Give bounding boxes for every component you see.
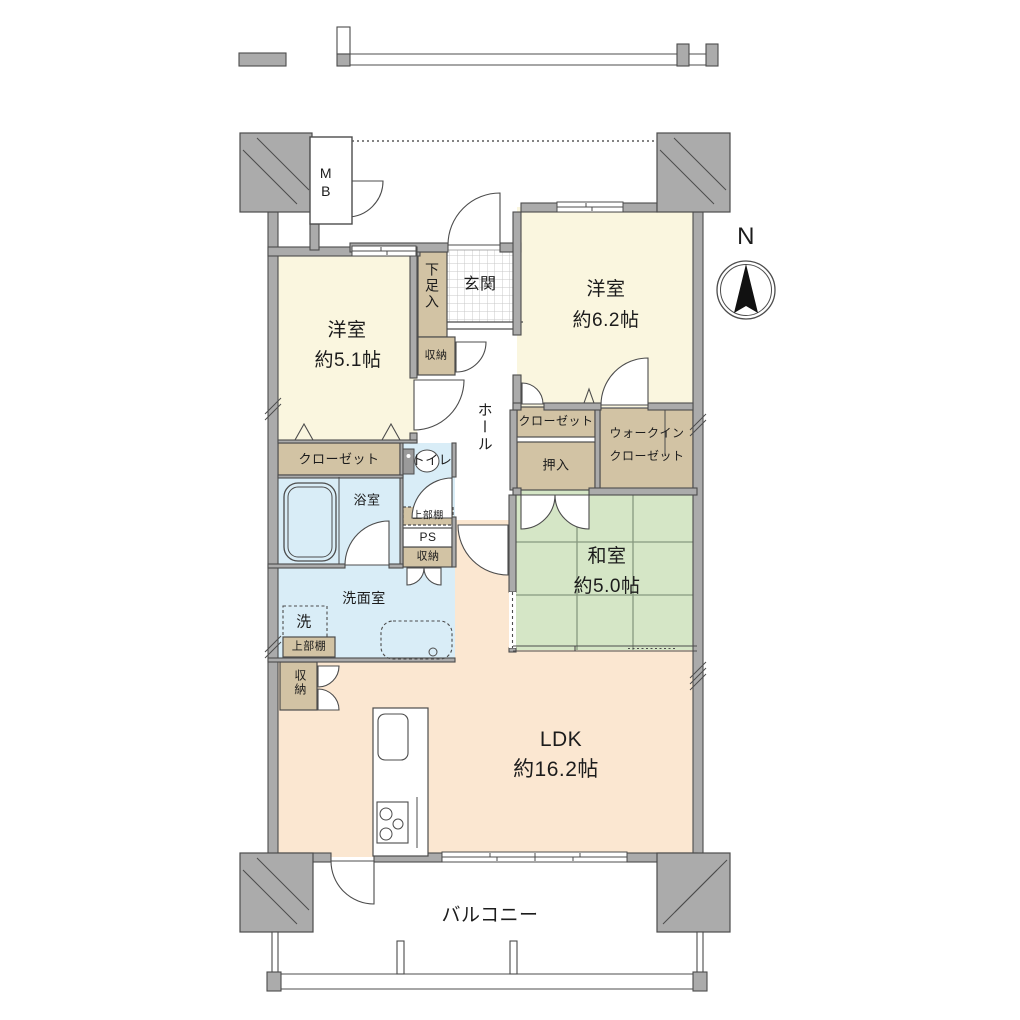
ldk-size: 約16.2帖: [513, 758, 599, 782]
meter-box-label-b: B: [321, 183, 331, 199]
mid-storage-label: 収納: [417, 551, 440, 564]
japanese-room-name: 和室: [587, 546, 626, 568]
bedroom1-size: 約5.1帖: [315, 350, 382, 372]
toilet-label: トイレ: [412, 454, 453, 469]
closet2-label: クローゼット: [518, 415, 593, 429]
hall-storage-label: 収納: [425, 350, 448, 363]
balcony-railing: [267, 932, 707, 991]
upper-shelf-toilet-label: 上部棚: [412, 510, 444, 522]
compass: [717, 261, 775, 319]
floorplan-page: 洋室 約5.1帖 洋室 約6.2帖 和室 約5.0帖 LDK 約16.2帖 バル…: [0, 0, 1020, 1020]
hall-label: ホール: [475, 402, 492, 453]
shoe-cabinet-label: 下足入: [424, 262, 440, 310]
wic-label-line2: クローゼット: [609, 450, 684, 464]
upper-shelf-wash-label: 上部棚: [292, 641, 327, 654]
closet1-label: クローゼット: [298, 453, 379, 468]
bedroom1-name: 洋室: [327, 320, 366, 342]
pipe-space-label: PS: [419, 531, 436, 545]
floorplan-drawing: [0, 0, 1020, 1020]
entrance-label: 玄関: [463, 276, 496, 294]
bathroom-label: 浴室: [353, 494, 380, 509]
compass-north-label: N: [737, 223, 755, 251]
balcony-label: バルコニー: [441, 905, 538, 927]
ldk-name: LDK: [540, 728, 582, 752]
bedroom2-name: 洋室: [586, 279, 625, 301]
corridor-railing: [239, 27, 718, 66]
meter-box-label-m: M: [320, 165, 332, 181]
oshiire-label: 押入: [542, 459, 569, 474]
washer-label: 洗: [296, 613, 312, 630]
bedroom2-size: 約6.2帖: [573, 310, 640, 332]
japanese-room-size: 約5.0帖: [574, 576, 641, 598]
wic-label-line1: ウォークイン: [609, 427, 684, 441]
ldk-storage-label: 収納: [292, 669, 306, 697]
washroom-label: 洗面室: [342, 590, 386, 606]
